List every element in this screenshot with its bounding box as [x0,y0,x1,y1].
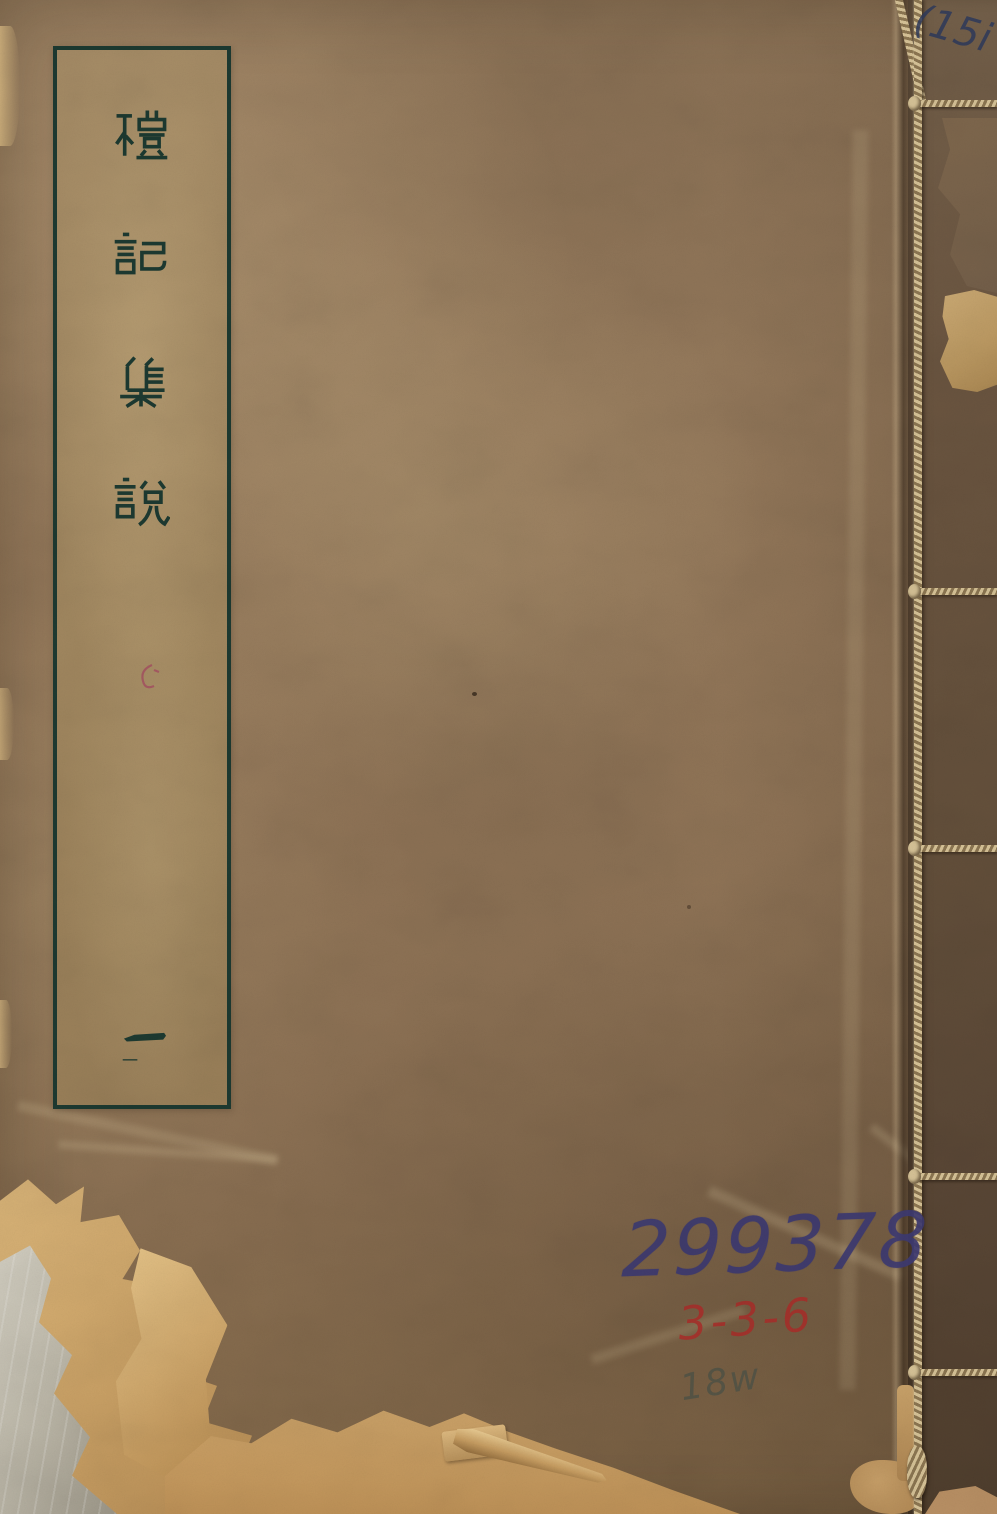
binding-thread-knot [907,1446,927,1498]
red-pen-mark [135,662,161,692]
binding-stitch [915,845,997,852]
book-cover-photo: 禮 記 集 說 [0,0,997,1514]
title-char-ji: 記 [112,230,170,286]
title-char-shuo: 說 [112,476,170,532]
binding-stitch [915,100,997,107]
binding-thread-vertical [914,0,922,1514]
edge-wear [0,1000,12,1068]
binding-stitch [915,588,997,595]
title-char-ji2: 集 [112,354,170,410]
title-char-text: 記 [112,230,170,286]
title-char-text: 集 [112,354,170,410]
title-char-text: 禮 [112,106,170,162]
shelf-number-handwritten: 3-3-6 [676,1287,815,1350]
binding-stitch [915,1173,997,1180]
spine-wear [930,118,997,293]
binding-stitch [915,1369,997,1376]
volume-marker-text: 一 [122,1051,138,1070]
edge-wear [0,26,20,146]
volume-marker: 一 [122,1028,168,1042]
title-char-li: 禮 [112,106,170,162]
paper-speck [472,692,477,696]
paper-speck [687,905,691,909]
torn-patch [940,290,997,392]
title-char-text: 說 [112,476,170,532]
edge-wear [0,688,14,760]
red-pen-mark-glyph [135,662,161,692]
accession-number-handwritten: 299378 [621,1195,932,1295]
title-label: 禮 記 集 說 [53,46,231,1109]
volume-marker-glyph [122,1030,168,1043]
